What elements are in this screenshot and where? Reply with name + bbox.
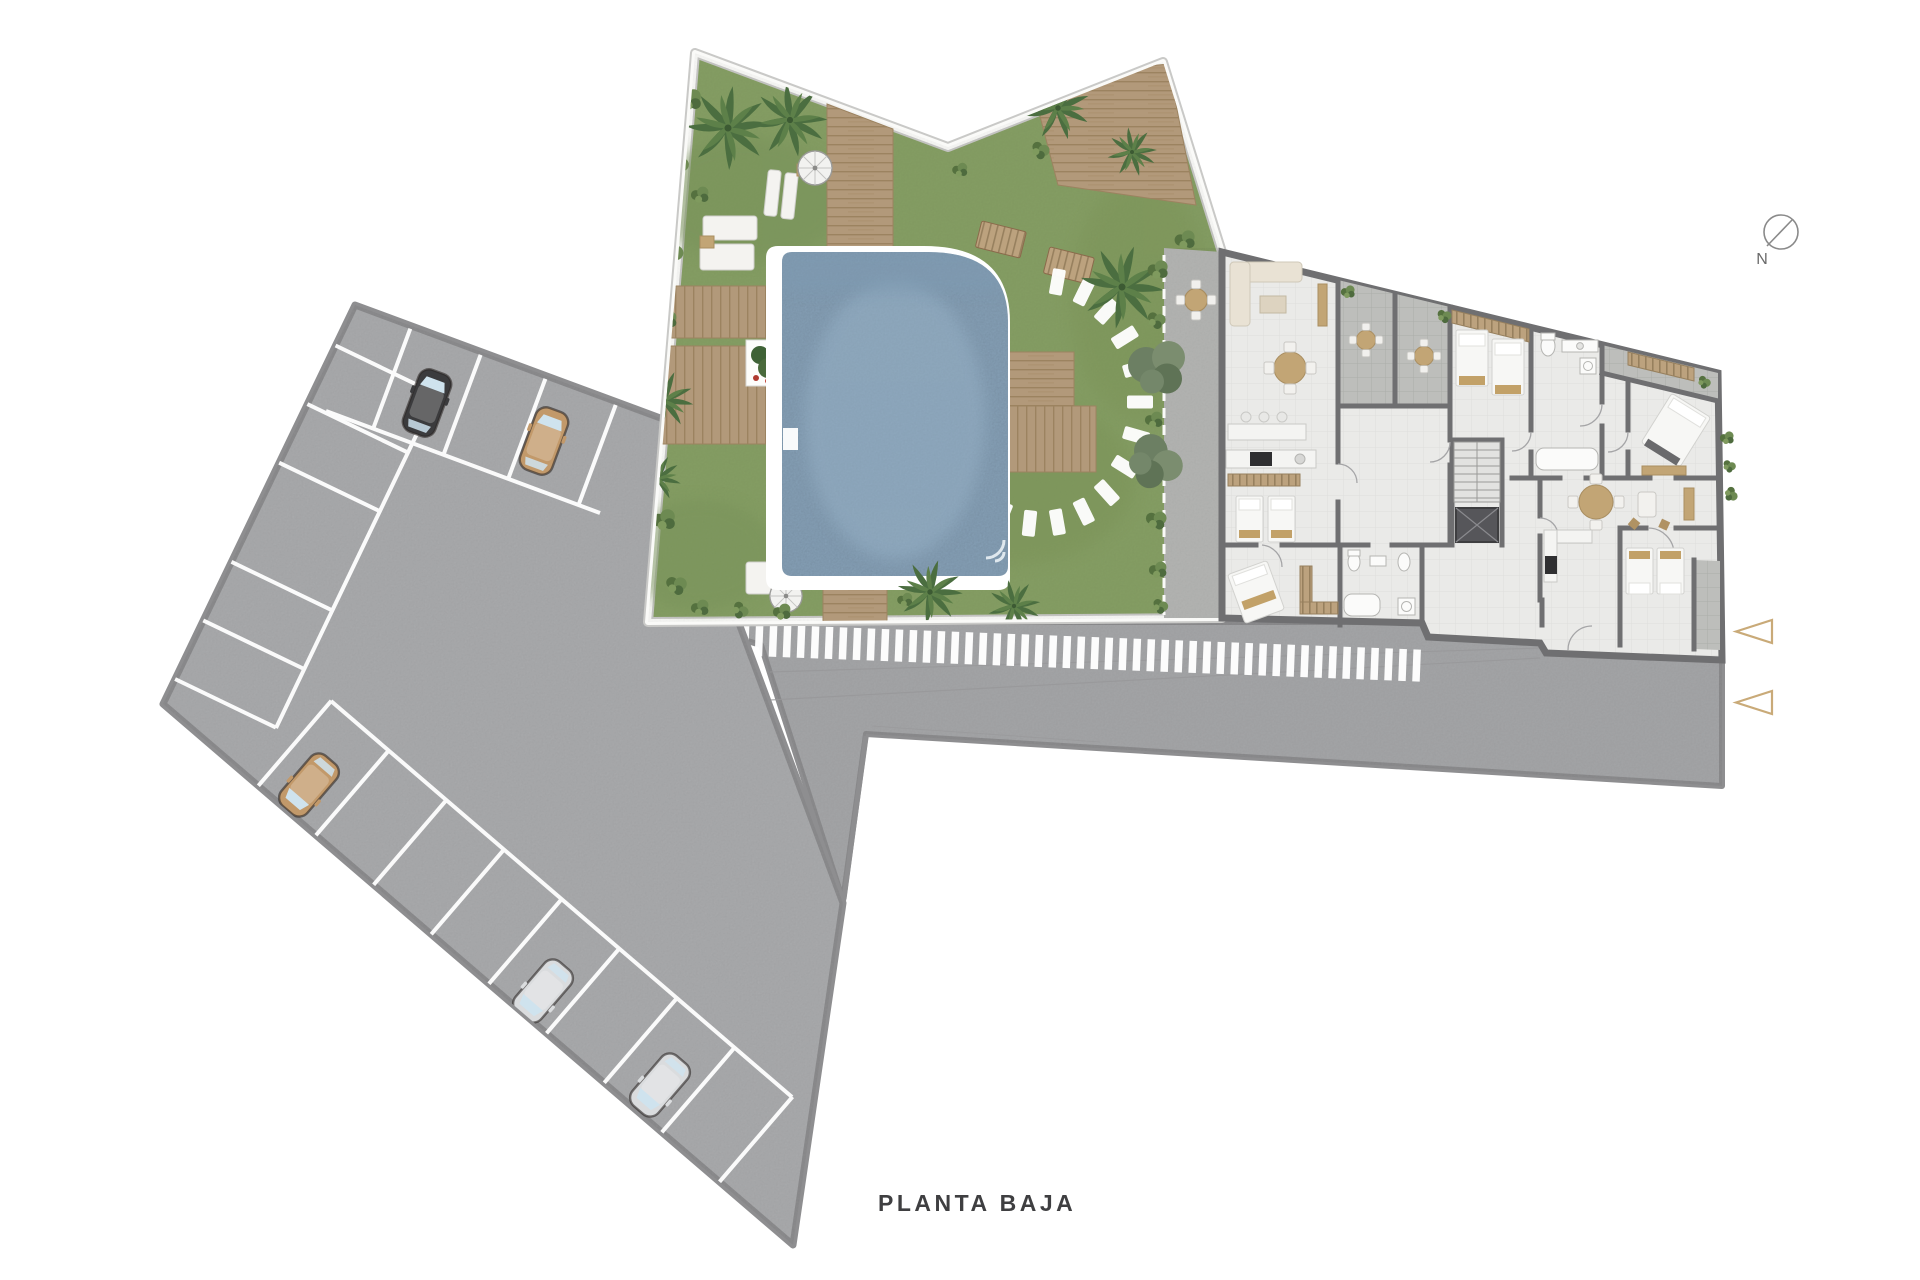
- compass-north-label: N: [1750, 251, 1774, 269]
- stool: [1241, 412, 1251, 422]
- tv-cabinet: [1642, 466, 1686, 475]
- sink: [1295, 454, 1305, 464]
- wardrobe: [1300, 602, 1338, 614]
- parasol-icon: [798, 151, 832, 185]
- kitchen-island: [1228, 424, 1306, 440]
- stove: [1545, 556, 1557, 574]
- armchair: [1638, 492, 1656, 517]
- garden: [625, 45, 1240, 642]
- plan-title: PLANTA BAJA: [878, 1190, 1076, 1217]
- terrace-far-right: [1694, 560, 1720, 650]
- stairs: [1454, 442, 1500, 502]
- tv-cabinet: [1684, 488, 1694, 520]
- coffee-table: [1260, 296, 1286, 313]
- wood-bench: [1228, 474, 1300, 486]
- building: [1222, 252, 1738, 660]
- tv-cabinet: [1318, 284, 1327, 326]
- sofa: [1230, 262, 1250, 326]
- stool: [1259, 412, 1269, 422]
- entrance-arrow-icon-2: [1736, 691, 1772, 714]
- deck-walkway: [827, 104, 893, 252]
- stool: [1277, 412, 1287, 422]
- pool: [760, 240, 1020, 600]
- floor-plan-canvas: PLANTA BAJA N: [0, 0, 1920, 1280]
- stove: [1250, 452, 1272, 466]
- compass-icon: [1764, 215, 1798, 249]
- pergola-deck-2: [1006, 406, 1096, 472]
- site-plan: [0, 0, 1920, 1280]
- entrance-arrow-icon-1: [1736, 620, 1772, 643]
- elevator: [1456, 508, 1498, 542]
